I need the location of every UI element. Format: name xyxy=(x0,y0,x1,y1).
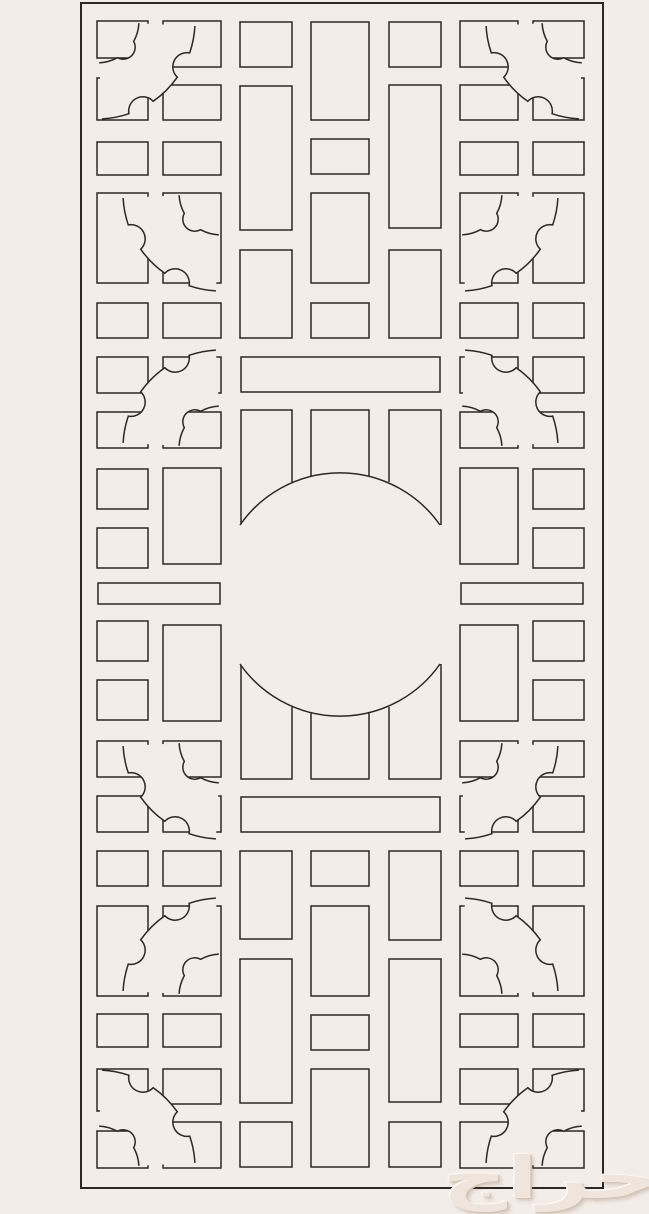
lattice-screen-drawing: حراج xyxy=(0,0,649,1214)
lattice-svg xyxy=(0,0,649,1214)
haraj-watermark: حراج xyxy=(443,1144,649,1212)
